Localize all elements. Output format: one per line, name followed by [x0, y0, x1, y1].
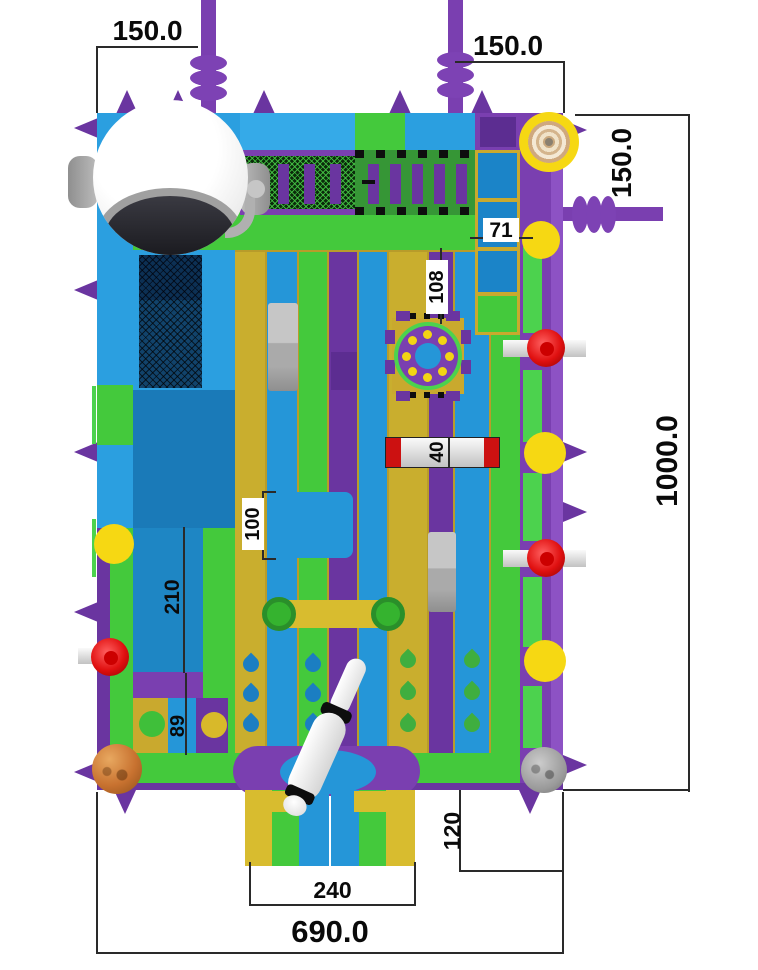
dim-210: 210	[160, 569, 184, 625]
tunnel-pillar	[330, 164, 341, 204]
tunnel-ticks	[355, 207, 475, 215]
spike-icon	[563, 502, 587, 522]
yellow-dot	[201, 712, 227, 738]
yellow-ball	[522, 221, 560, 259]
spike-icon	[74, 602, 98, 622]
dim-line	[262, 491, 276, 493]
wall-strip-green	[523, 247, 542, 333]
left-wall	[97, 445, 133, 528]
top-block	[240, 113, 355, 153]
left-wall-green	[97, 385, 133, 445]
helmet-knob	[247, 180, 265, 198]
dim-line	[562, 792, 564, 954]
spike-icon	[74, 442, 98, 462]
purple-block	[331, 352, 357, 390]
red-ball-core	[540, 552, 554, 566]
cell-blue	[478, 153, 517, 198]
dim-line	[563, 61, 565, 113]
crash-beam-cap	[386, 438, 401, 467]
moon-ball	[521, 747, 567, 793]
dim-line	[470, 237, 483, 239]
red-ball-core	[540, 342, 554, 356]
spike-icon	[253, 90, 275, 114]
dim-top-left: 150.0	[95, 16, 200, 46]
dim-line	[262, 558, 276, 560]
red-ball-core	[104, 651, 118, 665]
dim-bottom-full: 690.0	[230, 914, 430, 948]
astronaut-helmet	[93, 100, 248, 255]
ball-pool	[133, 390, 235, 528]
carousel-stub	[446, 391, 460, 401]
spike-icon	[519, 790, 541, 814]
white-beam	[503, 340, 529, 357]
purple-bar	[133, 672, 203, 698]
crash-beam-cap	[484, 438, 499, 467]
spike-icon	[389, 90, 411, 114]
dim-slide-depth: 120	[440, 803, 464, 859]
spike-icon	[471, 90, 493, 114]
carousel-stub	[385, 330, 395, 344]
carousel-stub	[396, 391, 410, 401]
tunnel-pillar	[304, 164, 315, 204]
yellow-ball	[94, 524, 134, 564]
tunnel-pillar	[456, 164, 467, 204]
blue-box	[277, 492, 353, 558]
tunnel-dash	[362, 180, 375, 184]
playground-plan: 150.0 150.0 150.0 1000.0 690.0 240 120 7…	[0, 0, 758, 970]
dim-line	[519, 237, 533, 239]
wall-strip-green	[523, 686, 542, 748]
wall-strip-green	[523, 473, 542, 541]
carousel-dot	[423, 373, 432, 382]
dim-40: 40	[427, 434, 447, 470]
dim-line	[97, 46, 198, 48]
dim-line	[688, 114, 690, 792]
dim-slide-width: 240	[270, 878, 395, 902]
yellow-ball	[524, 432, 566, 474]
carousel-stub	[461, 360, 471, 374]
slide-top-block	[354, 791, 411, 812]
dim-line	[249, 862, 251, 906]
carousel-dot	[408, 367, 417, 376]
dim-right-full: 1000.0	[651, 401, 685, 521]
spike-icon	[563, 442, 587, 462]
carousel-dot	[408, 336, 417, 345]
dim-line	[414, 862, 416, 906]
dim-line	[96, 792, 98, 954]
tunnel-pillar	[412, 164, 423, 204]
wall-strip-green	[523, 370, 542, 442]
carousel-dot	[402, 352, 411, 361]
top-block	[355, 113, 405, 153]
tunnel-ticks	[355, 150, 475, 158]
spike-icon	[74, 118, 98, 138]
tube-end-green	[262, 597, 296, 631]
carousel-dot	[438, 367, 447, 376]
top-block-purple-box	[480, 117, 516, 147]
yellow-ball	[524, 640, 566, 682]
dim-108: 108	[426, 260, 448, 314]
dim-line	[455, 61, 565, 63]
pole-ring	[190, 70, 227, 86]
white-beam	[503, 550, 529, 567]
pole-ring	[437, 82, 474, 98]
gray-obstacle	[428, 532, 456, 612]
dim-89: 89	[167, 704, 189, 748]
carousel-stub	[396, 311, 410, 321]
dim-line	[96, 46, 98, 113]
spike-icon	[74, 280, 98, 300]
tunnel-pillar	[278, 164, 289, 204]
dim-line	[459, 870, 563, 872]
carousel-stub	[446, 311, 460, 321]
planet-ball	[92, 744, 142, 794]
carousel-dot	[423, 330, 432, 339]
pole-ring	[190, 55, 227, 71]
carousel-stub	[385, 360, 395, 374]
dim-line	[448, 438, 450, 467]
tunnel-pillar	[434, 164, 445, 204]
edge-highlight	[92, 386, 96, 444]
cell-green	[478, 296, 517, 332]
carousel-center	[415, 343, 441, 369]
tunnel-pillar	[368, 164, 379, 204]
wall-strip-green	[523, 577, 542, 647]
dim-line	[249, 904, 416, 906]
gray-obstacle	[268, 303, 298, 391]
cell-blue	[478, 251, 517, 292]
top-block	[405, 113, 475, 153]
pole-ring	[190, 85, 227, 101]
pole-ring	[437, 67, 474, 83]
dim-71: 71	[483, 218, 519, 242]
carousel-stub	[461, 330, 471, 344]
tube-end-green	[371, 597, 405, 631]
carousel-dot	[445, 352, 454, 361]
dim-line	[97, 952, 564, 954]
dim-line	[563, 789, 690, 791]
climb-net-shade	[139, 255, 202, 300]
spiral-center	[545, 138, 553, 146]
dim-right-upper: 150.0	[607, 115, 637, 211]
carousel-dot	[438, 336, 447, 345]
dim-top-right: 150.0	[453, 31, 563, 61]
dim-100: 100	[242, 498, 264, 550]
green-dot	[139, 711, 165, 737]
tunnel-pillar	[390, 164, 401, 204]
